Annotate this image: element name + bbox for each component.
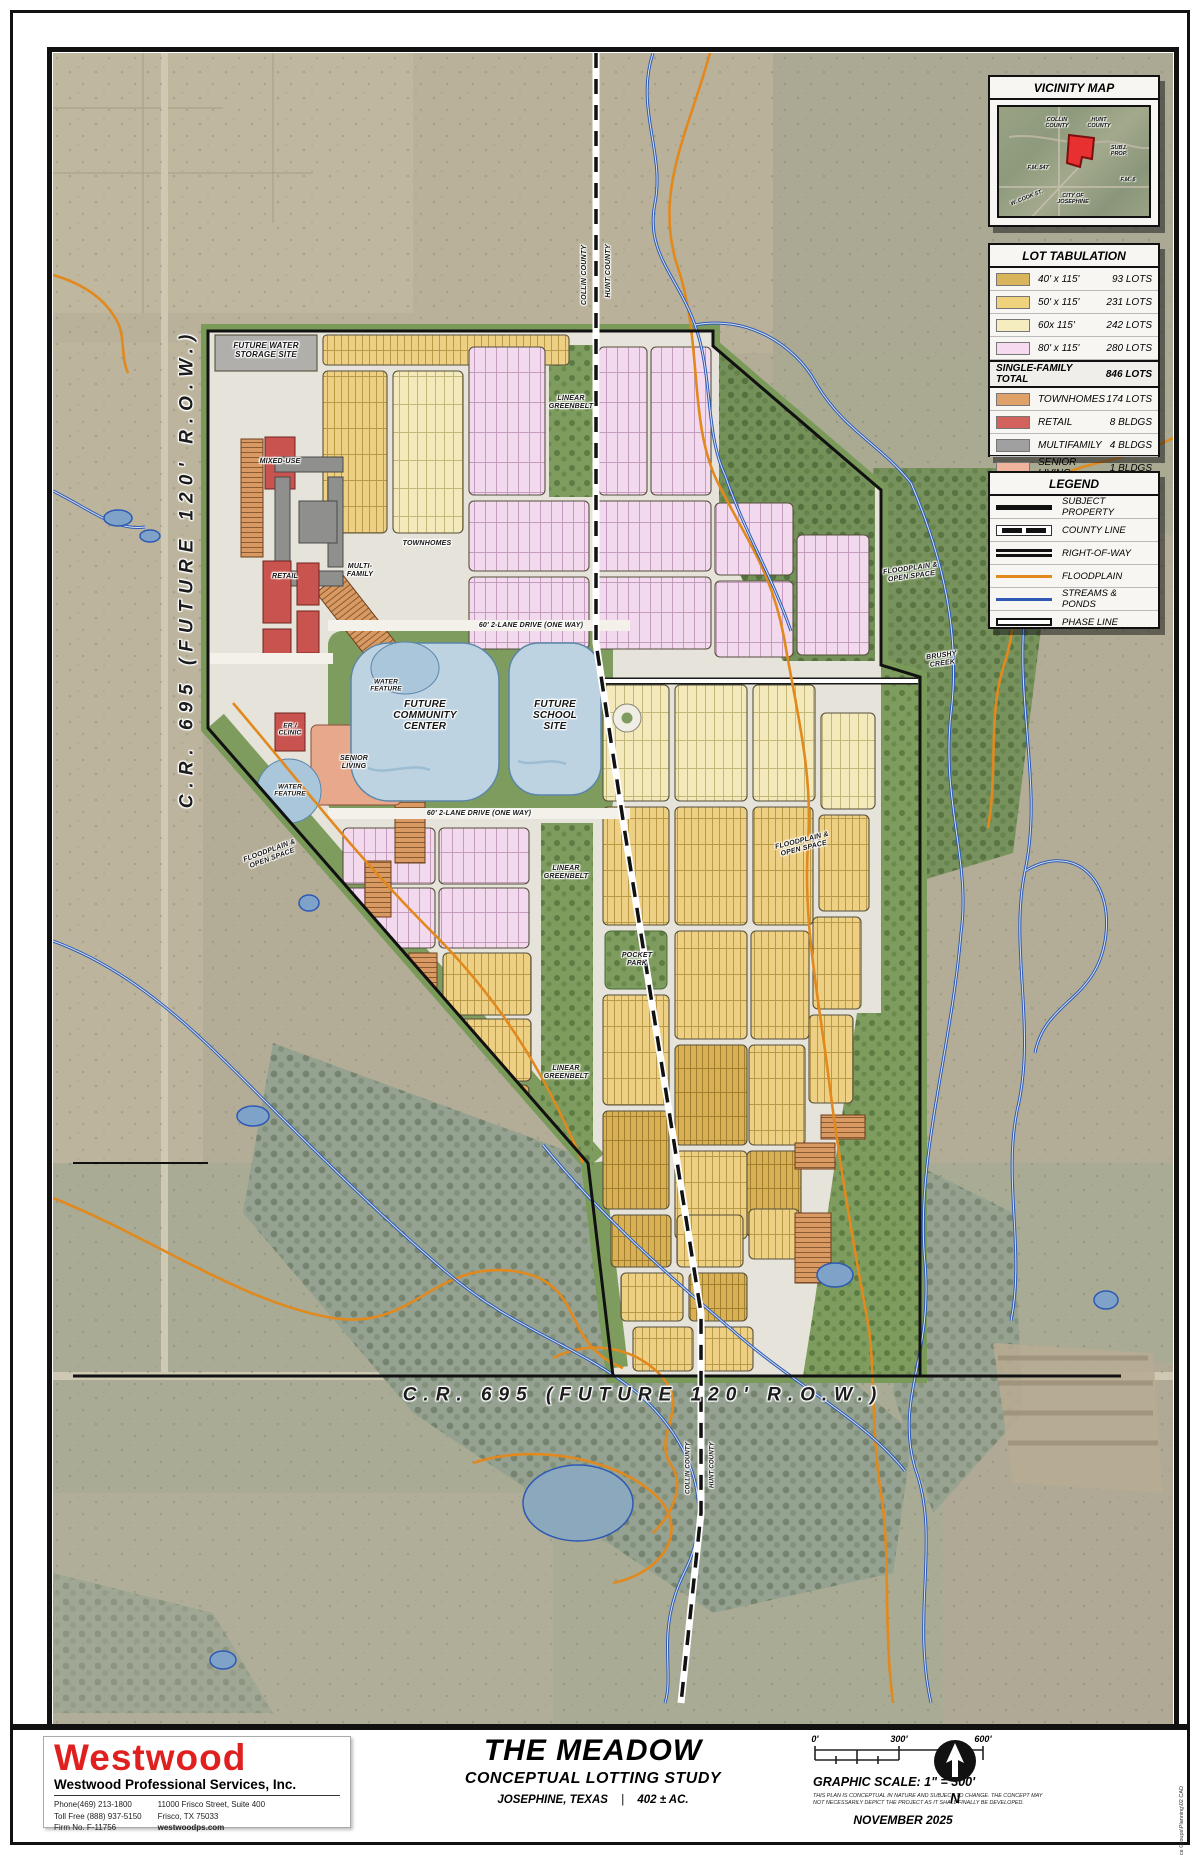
vicinity-fm547: F.M. 547 bbox=[1021, 165, 1055, 171]
company-contact-col1: Phone(469) 213-1800 Toll Free (888) 937-… bbox=[54, 1799, 142, 1834]
label-linear-greenbelt-3: LINEAR GREENBELT bbox=[538, 1065, 594, 1081]
file-path-note: N:0050873.0045 Service Groups\Planning\0… bbox=[1179, 1786, 1185, 1855]
company-address2: Frisco, TX 75033 bbox=[158, 1811, 265, 1823]
plan-sheet: COLLIN COUNTY HUNT COUNTY C.R. 695 (FUTU… bbox=[0, 0, 1200, 1855]
streams-ponds-swatch bbox=[996, 598, 1052, 601]
entrance-road bbox=[208, 653, 333, 664]
label-er-clinic: ER / CLINIC bbox=[272, 723, 308, 738]
swatch-80-lot bbox=[996, 342, 1030, 355]
company-firm-number: Firm No. F-11756 bbox=[54, 1822, 142, 1834]
label-water-feature-1: WATER FEATURE bbox=[363, 679, 409, 694]
title-block: Westwood Westwood Professional Services,… bbox=[13, 1724, 1187, 1842]
vicinity-county-collin: COLLIN COUNTY bbox=[1041, 117, 1073, 130]
phase-line-swatch bbox=[996, 618, 1052, 626]
legend-panel: LEGEND SUBJECT PROPERTY COUNTY LINE RIGH… bbox=[988, 471, 1160, 629]
label-mixed-use: MIXED-USE bbox=[259, 458, 301, 466]
vicinity-map-panel: VICINITY MAP COLLIN COUNTY HUNT COUNTY S… bbox=[988, 75, 1160, 227]
scale-tick-0: 0' bbox=[811, 1734, 818, 1744]
right-of-way-swatch bbox=[996, 547, 1052, 560]
single-family-total-row: SINGLE-FAMILY TOTAL846 LOTS bbox=[990, 360, 1158, 388]
legend-phase-line: PHASE LINE bbox=[990, 611, 1158, 633]
project-location-line: JOSEPHINE, TEXAS | 402 ± AC. bbox=[378, 1794, 808, 1806]
company-tollfree: Toll Free (888) 937-5150 bbox=[54, 1811, 142, 1823]
label-cr695-west: C.R. 695 (FUTURE 120' R.O.W.) bbox=[176, 328, 197, 809]
swatch-50-lot bbox=[996, 296, 1030, 309]
legend-streams-ponds: STREAMS & PONDS bbox=[990, 588, 1158, 611]
label-retail: RETAIL bbox=[272, 573, 298, 581]
project-acreage: 402 ± AC. bbox=[637, 1794, 688, 1806]
lot-row-retail: RETAIL8 BLDGS bbox=[990, 411, 1158, 434]
company-name: Westwood Professional Services, Inc. bbox=[54, 1776, 340, 1796]
county-line-swatch bbox=[996, 525, 1052, 536]
lot-row-40: 40' x 115'93 LOTS bbox=[990, 268, 1158, 291]
lot-tabulation-title: LOT TABULATION bbox=[990, 245, 1158, 268]
label-community-center: FUTURE COMMUNITY CENTER bbox=[379, 699, 471, 733]
lot-tabulation-panel: LOT TABULATION 40' x 115'93 LOTS 50' x 1… bbox=[988, 243, 1160, 457]
swatch-40-lot bbox=[996, 273, 1030, 286]
legend-right-of-way: RIGHT-OF-WAY bbox=[990, 542, 1158, 565]
legend-county-line: COUNTY LINE bbox=[990, 519, 1158, 542]
swatch-townhomes bbox=[996, 393, 1030, 406]
north-arrow-icon bbox=[932, 1738, 978, 1784]
label-drive-south: 60' 2-LANE DRIVE (ONE WAY) bbox=[427, 810, 531, 818]
vicinity-subj-prop: SUBJ. PROP. bbox=[1105, 145, 1133, 158]
lot-row-multifamily: MULTIFAMILY4 BLDGS bbox=[990, 434, 1158, 457]
label-county-collin-top: COLLIN COUNTY bbox=[581, 230, 589, 320]
label-townhomes: TOWNHOMES bbox=[403, 540, 452, 548]
plan-date: NOVEMBER 2025 bbox=[813, 1813, 993, 1827]
label-county-hunt-bottom: HUNT COUNTY bbox=[710, 1442, 717, 1488]
lot-row-townhomes: TOWNHOMES174 LOTS bbox=[990, 388, 1158, 411]
swatch-60-lot bbox=[996, 319, 1030, 332]
vicinity-city-of-josephine: CITY OF JOSEPHINE bbox=[1051, 193, 1095, 206]
project-subtitle: CONCEPTUAL LOTTING STUDY bbox=[378, 1770, 808, 1788]
label-linear-greenbelt-2: LINEAR GREENBELT bbox=[538, 865, 594, 881]
company-logo-block: Westwood Westwood Professional Services,… bbox=[43, 1736, 351, 1828]
label-school-site: FUTURE SCHOOL SITE bbox=[522, 699, 588, 733]
label-senior-living: SENIOR LIVING bbox=[331, 755, 377, 771]
company-contact-col2: 11000 Frisco Street, Suite 400 Frisco, T… bbox=[158, 1799, 265, 1834]
legend-title: LEGEND bbox=[990, 473, 1158, 496]
label-multi-family: MULTI-FAMILY bbox=[336, 563, 384, 579]
lot-row-80: 80' x 115'280 LOTS bbox=[990, 337, 1158, 360]
legend-floodplain: FLOODPLAIN bbox=[990, 565, 1158, 588]
sheet-border: COLLIN COUNTY HUNT COUNTY C.R. 695 (FUTU… bbox=[10, 10, 1190, 1845]
label-drive-north: 60' 2-LANE DRIVE (ONE WAY) bbox=[479, 622, 583, 630]
label-future-water-storage: FUTURE WATER STORAGE SITE bbox=[220, 342, 312, 360]
legend-subject-property: SUBJECT PROPERTY bbox=[990, 496, 1158, 519]
project-title-block: THE MEADOW CONCEPTUAL LOTTING STUDY JOSE… bbox=[378, 1734, 808, 1806]
label-county-hunt-top: HUNT COUNTY bbox=[605, 231, 613, 311]
north-label: N bbox=[931, 1790, 979, 1806]
company-logo: Westwood bbox=[54, 1739, 340, 1776]
subject-property-shape bbox=[1067, 135, 1094, 167]
company-address1: 11000 Frisco Street, Suite 400 bbox=[158, 1799, 265, 1811]
label-linear-greenbelt-1: LINEAR GREENBELT bbox=[542, 395, 600, 411]
label-county-collin-bottom: COLLIN COUNTY bbox=[686, 1442, 693, 1494]
location-divider: | bbox=[621, 1794, 624, 1806]
label-cr695-south: C.R. 695 (FUTURE 120' R.O.W.) bbox=[403, 1384, 884, 1405]
subject-property-swatch bbox=[996, 505, 1052, 510]
north-arrow-block: N bbox=[931, 1738, 979, 1806]
project-location: JOSEPHINE, TEXAS bbox=[497, 1794, 608, 1806]
swatch-multifamily bbox=[996, 439, 1030, 452]
company-website: westwoodps.com bbox=[158, 1822, 265, 1834]
vicinity-fm6: F.M. 6 bbox=[1115, 177, 1141, 183]
vicinity-county-hunt: HUNT COUNTY bbox=[1083, 117, 1115, 130]
scale-tick-300: 300' bbox=[890, 1734, 907, 1744]
retail-building bbox=[263, 561, 291, 623]
label-pocket-park: POCKET PARK bbox=[615, 952, 659, 968]
project-title: THE MEADOW bbox=[378, 1734, 808, 1768]
floodplain-swatch bbox=[996, 575, 1052, 578]
vicinity-map-title: VICINITY MAP bbox=[990, 77, 1158, 100]
label-water-feature-2: WATER FEATURE bbox=[267, 784, 313, 799]
lot-row-60: 60x 115'242 LOTS bbox=[990, 314, 1158, 337]
multifamily-building bbox=[299, 501, 337, 543]
vicinity-map-image: COLLIN COUNTY HUNT COUNTY SUBJ. PROP. F.… bbox=[997, 105, 1151, 218]
swatch-retail bbox=[996, 416, 1030, 429]
lot-row-50: 50' x 115'231 LOTS bbox=[990, 291, 1158, 314]
company-phone: Phone(469) 213-1800 bbox=[54, 1799, 142, 1811]
